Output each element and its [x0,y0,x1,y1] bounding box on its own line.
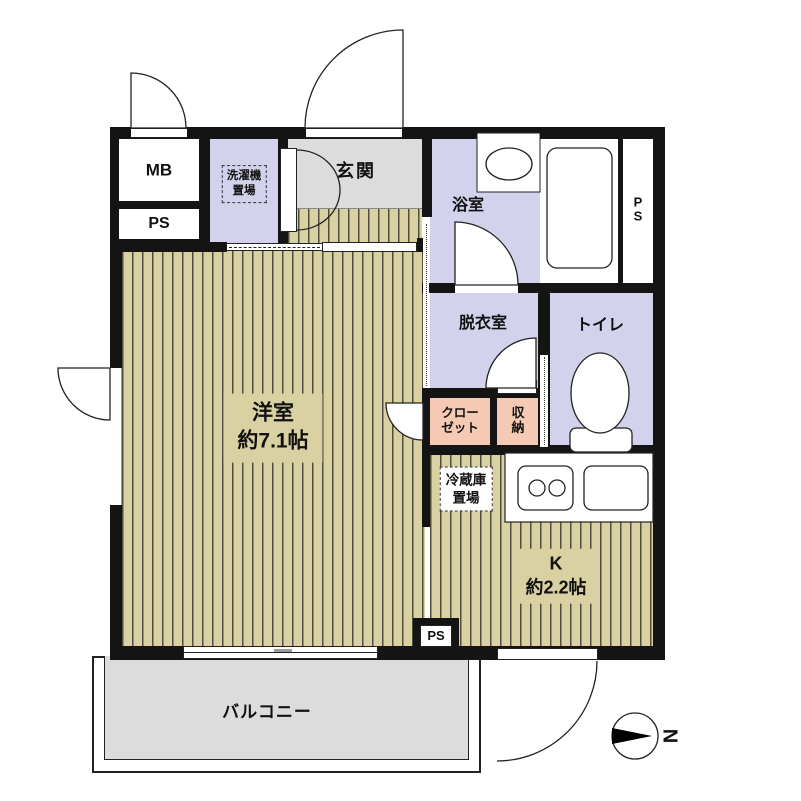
storage-label: 収 納 [511,406,524,436]
pipe-space-bath-label: P S [634,196,643,225]
dressing-label: 脱衣室 [459,314,507,334]
balcony-label: バルコニー [222,701,312,722]
fixtures-layer [0,0,801,801]
west-window-swing-icon [58,368,110,420]
kitchen-label: K 約2.2帖 [515,549,596,604]
kitchen-exterior-door-swing-icon [497,661,597,761]
entrance-label: 玄関 [336,160,376,183]
bath-door-swing-icon [455,222,518,285]
laundry-label: 洗濯機 置場 [222,165,267,203]
bathtub-icon [547,148,612,268]
bath-sink-icon [486,148,532,180]
storage-door-swing-icon [486,338,536,388]
mb-door-swing-icon [131,73,186,128]
pipe-space-top-label: PS [148,214,169,234]
pipe-space-bottom-label: PS [427,628,444,644]
closet-door-swing-icon [386,403,423,440]
compass-north-label: N [657,729,682,743]
toilet-bowl-icon [571,353,629,433]
bath-label: 浴室 [452,196,484,216]
closet-label: クロー ゼット [441,406,479,436]
floor-plan: MB PS 洗濯機 置場 玄関 浴室 P S 脱衣室 トイレ クロー ゼット 収… [0,0,801,801]
toilet-label: トイレ [576,316,624,336]
laundry-bifold-door-icon [297,190,340,230]
entrance-door-swing-icon [305,30,403,128]
western-room-label: 洋室 約7.1帖 [223,394,322,463]
laundry-bifold-door-icon [297,150,340,190]
meter-box-label: MB [146,159,172,180]
kitchen-sink-icon [584,466,648,510]
fridge-space-label: 冷蔵庫 置場 [440,466,493,511]
